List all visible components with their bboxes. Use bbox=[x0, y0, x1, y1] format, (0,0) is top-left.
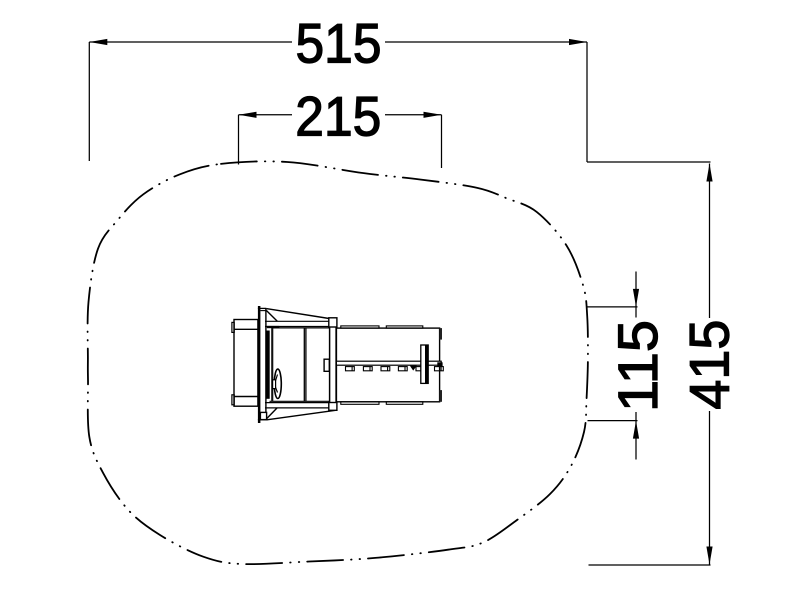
svg-text:115: 115 bbox=[606, 320, 669, 412]
svg-text:215: 215 bbox=[295, 84, 381, 147]
svg-text:515: 515 bbox=[296, 11, 382, 74]
svg-text:415: 415 bbox=[678, 320, 741, 410]
